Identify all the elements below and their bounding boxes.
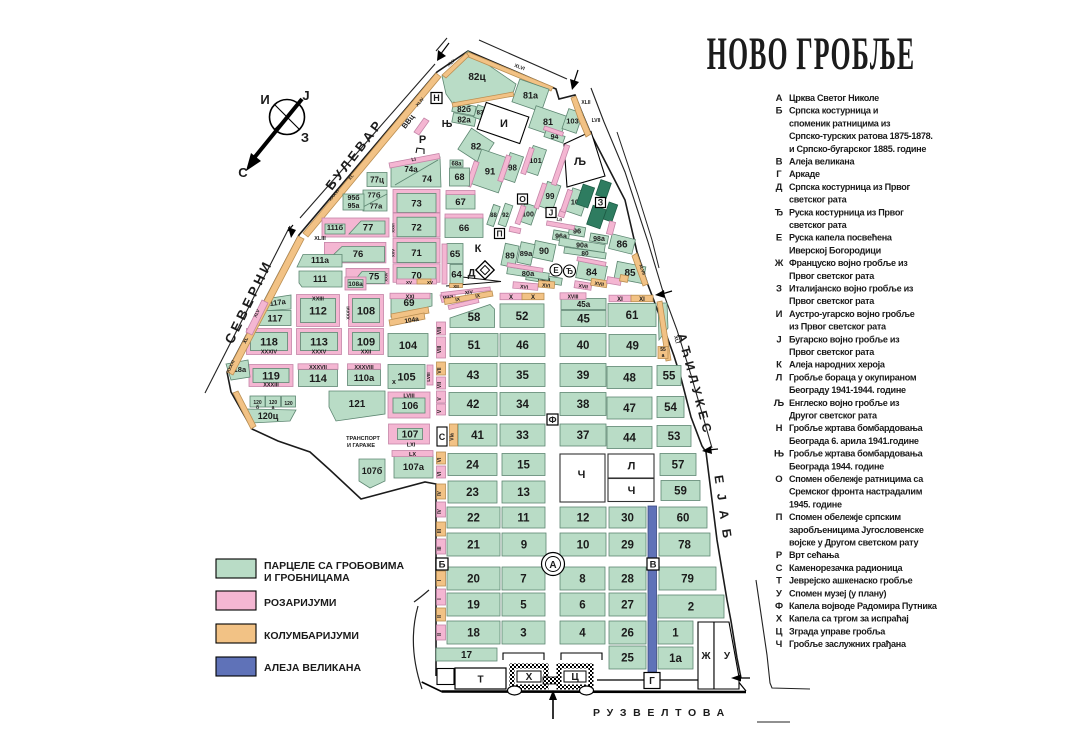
svg-text:39: 39 bbox=[577, 370, 590, 382]
svg-text:И ГАРАЖЕ: И ГАРАЖЕ bbox=[347, 443, 375, 449]
svg-text:С: С bbox=[776, 563, 783, 574]
svg-text:111: 111 bbox=[313, 274, 327, 284]
svg-text:Д: Д bbox=[776, 182, 783, 193]
svg-text:45а: 45а bbox=[577, 300, 591, 309]
svg-text:Л: Л bbox=[776, 372, 783, 383]
svg-text:XXVI: XXVI bbox=[391, 223, 396, 232]
svg-text:VIII: VIII bbox=[437, 345, 443, 353]
svg-text:Ђ: Ђ bbox=[775, 207, 783, 218]
svg-text:заробљеницима Југословенске: заробљеницима Југословенске bbox=[789, 525, 924, 535]
svg-text:LVIII: LVIII bbox=[403, 394, 415, 400]
svg-text:Јеврејско ашкенаско гробље: Јеврејско ашкенаско гробље bbox=[789, 576, 913, 586]
svg-text:XII: XII bbox=[453, 284, 459, 289]
svg-text:77: 77 bbox=[363, 223, 374, 234]
svg-text:LX: LX bbox=[409, 452, 416, 458]
svg-text:Каменорезачка радионица: Каменорезачка радионица bbox=[789, 563, 904, 573]
svg-text:Ђ: Ђ bbox=[566, 267, 573, 276]
svg-text:И: И bbox=[776, 309, 783, 320]
svg-text:57: 57 bbox=[672, 460, 685, 472]
svg-text:Ј: Ј bbox=[549, 208, 554, 218]
svg-text:XXXVII: XXXVII bbox=[309, 365, 327, 371]
svg-text:Ч: Ч bbox=[578, 469, 586, 481]
svg-text:8: 8 bbox=[579, 574, 586, 586]
svg-text:XI: XI bbox=[639, 297, 645, 303]
svg-text:Гробље жртава бомбардовања: Гробље жртава бомбардовања bbox=[789, 423, 924, 433]
svg-text:НОВО ГРОБЉЕ: НОВО ГРОБЉЕ bbox=[707, 28, 915, 80]
svg-text:113: 113 bbox=[310, 337, 328, 349]
svg-text:12: 12 bbox=[577, 513, 590, 525]
svg-text:из Првог светског рата: из Првог светског рата bbox=[789, 322, 887, 332]
svg-text:К: К bbox=[475, 243, 482, 255]
svg-text:25: 25 bbox=[621, 653, 634, 665]
svg-text:Црква Светог Николе: Црква Светог Николе bbox=[789, 93, 879, 103]
svg-text:XVI: XVI bbox=[542, 283, 551, 290]
svg-text:58: 58 bbox=[468, 312, 481, 324]
svg-text:33: 33 bbox=[516, 430, 529, 442]
svg-text:х: х bbox=[392, 379, 396, 386]
svg-text:53: 53 bbox=[668, 431, 681, 443]
svg-text:РУЗВЕЛТОВА: РУЗВЕЛТОВА bbox=[593, 707, 731, 719]
svg-text:АЛЕЈА ВЕЛИКАНА: АЛЕЈА ВЕЛИКАНА bbox=[264, 662, 361, 674]
svg-text:X: X bbox=[531, 295, 535, 301]
svg-text:Београда 6. арила 1941.године: Београда 6. арила 1941.године bbox=[789, 436, 919, 446]
svg-text:Њ: Њ bbox=[442, 119, 453, 130]
svg-text:1: 1 bbox=[672, 628, 679, 640]
svg-text:Руска капела посвећена: Руска капела посвећена bbox=[789, 233, 893, 243]
svg-text:Л: Л bbox=[628, 461, 636, 473]
svg-text:106: 106 bbox=[402, 401, 419, 412]
svg-text:Р: Р bbox=[776, 550, 783, 561]
svg-text:80: 80 bbox=[581, 250, 589, 257]
svg-text:9: 9 bbox=[521, 540, 527, 552]
svg-text:И: И bbox=[260, 92, 269, 107]
svg-text:XXXV: XXXV bbox=[312, 350, 327, 356]
svg-text:XXIII: XXIII bbox=[312, 297, 324, 303]
svg-text:20: 20 bbox=[467, 574, 480, 586]
svg-text:121: 121 bbox=[349, 399, 366, 410]
svg-text:104: 104 bbox=[399, 340, 418, 352]
svg-text:107: 107 bbox=[402, 430, 419, 441]
svg-text:Њ: Њ bbox=[774, 449, 784, 460]
svg-text:60: 60 bbox=[677, 513, 690, 525]
svg-text:Гробље бораца у окупираном: Гробље бораца у окупираном bbox=[789, 372, 917, 382]
svg-text:Бугарско војно гробље из: Бугарско војно гробље из bbox=[789, 334, 900, 344]
svg-text:војске у Другом светском рату: војске у Другом светском рату bbox=[789, 538, 920, 548]
svg-text:30: 30 bbox=[621, 513, 634, 525]
svg-text:29: 29 bbox=[621, 540, 634, 552]
svg-text:Иверској Богородици: Иверској Богородици bbox=[789, 245, 881, 255]
svg-text:Т: Т bbox=[776, 576, 782, 587]
svg-text:99: 99 bbox=[546, 192, 555, 201]
svg-text:81а: 81а bbox=[523, 91, 539, 101]
svg-text:77б: 77б bbox=[368, 191, 381, 200]
svg-text:С: С bbox=[238, 165, 248, 180]
svg-text:светског рата: светског рата bbox=[789, 220, 848, 230]
svg-text:О: О bbox=[519, 194, 526, 204]
svg-text:Ц: Ц bbox=[571, 672, 579, 683]
svg-text:З: З bbox=[598, 198, 604, 208]
svg-text:111б: 111б bbox=[327, 223, 344, 232]
svg-text:Р: Р bbox=[419, 134, 426, 146]
svg-text:Зграда управе гробља: Зграда управе гробља bbox=[789, 626, 886, 636]
svg-text:73: 73 bbox=[411, 199, 422, 210]
svg-text:59: 59 bbox=[674, 486, 687, 498]
svg-text:88: 88 bbox=[490, 213, 497, 219]
svg-text:VII: VII bbox=[437, 367, 443, 374]
svg-text:6: 6 bbox=[579, 600, 585, 612]
svg-text:З: З bbox=[301, 130, 309, 145]
svg-text:4: 4 bbox=[579, 628, 586, 640]
svg-text:Врт сећања: Врт сећања bbox=[789, 550, 840, 560]
svg-text:LVII: LVII bbox=[592, 118, 601, 124]
svg-text:82а: 82а bbox=[457, 115, 471, 124]
svg-text:Капела војводе Радомира Путник: Капела војводе Радомира Путника bbox=[789, 601, 938, 611]
svg-text:Српска костурница и: Српска костурница и bbox=[789, 106, 878, 116]
svg-text:76: 76 bbox=[353, 249, 364, 260]
svg-text:22: 22 bbox=[467, 513, 480, 525]
svg-text:Енглеско војно гробље из: Енглеско војно гробље из bbox=[789, 398, 900, 408]
svg-text:Ж: Ж bbox=[700, 651, 711, 662]
svg-text:2: 2 bbox=[688, 602, 694, 614]
svg-text:ПАРЦЕЛЕ СА ГРОБОВИМА: ПАРЦЕЛЕ СА ГРОБОВИМА bbox=[264, 560, 404, 572]
svg-text:95б: 95б bbox=[347, 194, 360, 202]
svg-text:VI: VI bbox=[437, 471, 443, 476]
svg-text:светског рата: светског рата bbox=[789, 195, 848, 205]
svg-text:Г: Г bbox=[649, 676, 655, 687]
svg-text:34: 34 bbox=[516, 399, 529, 411]
svg-text:120: 120 bbox=[284, 401, 293, 407]
svg-text:VII: VII bbox=[437, 381, 443, 388]
svg-text:Ж: Ж bbox=[774, 258, 784, 269]
svg-text:41: 41 bbox=[471, 430, 484, 442]
svg-text:94: 94 bbox=[551, 134, 559, 141]
svg-text:и Српско-бугарског 1885. годин: и Српско-бугарског 1885. године bbox=[789, 144, 926, 154]
svg-text:37: 37 bbox=[577, 430, 590, 442]
svg-text:Српска костурница из Првог: Српска костурница из Првог bbox=[789, 182, 911, 192]
svg-text:74а: 74а bbox=[404, 165, 418, 174]
svg-text:VI: VI bbox=[437, 457, 443, 462]
svg-text:79: 79 bbox=[681, 574, 694, 586]
svg-text:Спомен обележје српским: Спомен обележје српским bbox=[789, 512, 901, 522]
svg-text:IV: IV bbox=[437, 490, 443, 495]
svg-text:IV: IV bbox=[437, 508, 443, 513]
svg-text:XI: XI bbox=[617, 297, 623, 303]
svg-text:III: III bbox=[437, 546, 443, 551]
svg-text:РОЗАРИЈУМИ: РОЗАРИЈУМИ bbox=[264, 597, 336, 609]
svg-text:XXXVIII: XXXVIII bbox=[354, 365, 374, 371]
svg-text:Љ: Љ bbox=[774, 398, 785, 409]
svg-text:LII: LII bbox=[556, 217, 562, 223]
svg-text:X: X bbox=[509, 295, 513, 301]
svg-text:3: 3 bbox=[520, 628, 526, 640]
svg-text:42: 42 bbox=[467, 399, 480, 411]
svg-text:З: З bbox=[776, 284, 782, 295]
svg-text:26: 26 bbox=[621, 628, 634, 640]
svg-text:66: 66 bbox=[459, 223, 470, 234]
svg-text:84: 84 bbox=[586, 268, 598, 279]
svg-text:61: 61 bbox=[626, 310, 639, 322]
svg-text:XVI: XVI bbox=[520, 284, 529, 291]
svg-text:Другог светског рата: Другог светског рата bbox=[789, 411, 878, 421]
svg-text:XXXIV: XXXIV bbox=[261, 350, 278, 356]
svg-text:55: 55 bbox=[663, 371, 676, 383]
svg-text:89а: 89а bbox=[520, 249, 533, 258]
svg-text:КОЛУМБАРИЈУМИ: КОЛУМБАРИЈУМИ bbox=[264, 630, 359, 642]
svg-text:109: 109 bbox=[357, 337, 375, 349]
svg-text:95а: 95а bbox=[348, 203, 360, 210]
svg-text:51: 51 bbox=[468, 340, 481, 352]
svg-text:114: 114 bbox=[309, 373, 328, 385]
svg-text:5: 5 bbox=[520, 600, 527, 612]
svg-text:VIII: VIII bbox=[437, 326, 443, 334]
svg-text:Д: Д bbox=[468, 268, 476, 280]
svg-text:Руска костурница из Првог: Руска костурница из Првог bbox=[789, 207, 904, 217]
svg-text:Аустро-угарско војно гробље: Аустро-угарско војно гробље bbox=[789, 309, 915, 319]
svg-text:ТРАНСПОРТ: ТРАНСПОРТ bbox=[346, 436, 380, 442]
svg-text:17: 17 bbox=[461, 650, 473, 661]
svg-text:1945. године: 1945. године bbox=[789, 499, 842, 509]
svg-text:LVIII: LVIII bbox=[426, 372, 431, 381]
svg-text:118: 118 bbox=[260, 337, 278, 349]
svg-text:92: 92 bbox=[502, 213, 509, 219]
svg-text:Алеја великана: Алеја великана bbox=[789, 157, 855, 167]
svg-text:Сремског фронта настрадалим: Сремског фронта настрадалим bbox=[789, 487, 923, 497]
svg-text:Спомен музеј (у плану): Спомен музеј (у плану) bbox=[789, 588, 887, 598]
svg-text:У: У bbox=[724, 651, 731, 662]
svg-text:Првог светског рата: Првог светског рата bbox=[789, 347, 875, 357]
svg-text:П: П bbox=[776, 512, 783, 523]
svg-text:Гробље заслужних грађана: Гробље заслужних грађана bbox=[789, 639, 907, 649]
svg-text:120ц: 120ц bbox=[258, 411, 279, 421]
svg-text:Љ: Љ bbox=[574, 156, 586, 168]
svg-text:43: 43 bbox=[467, 370, 480, 382]
svg-text:77а: 77а bbox=[370, 202, 383, 211]
svg-text:28: 28 bbox=[621, 574, 634, 586]
svg-text:52: 52 bbox=[516, 311, 529, 323]
svg-text:108: 108 bbox=[357, 306, 375, 318]
svg-text:Гробље жртава бомбардовања: Гробље жртава бомбардовања bbox=[789, 449, 924, 459]
svg-text:46: 46 bbox=[516, 340, 529, 352]
svg-text:90а: 90а bbox=[576, 243, 588, 250]
svg-text:44: 44 bbox=[623, 433, 636, 445]
svg-text:И ГРОБНИЦАМА: И ГРОБНИЦАМА bbox=[264, 572, 350, 584]
svg-text:112: 112 bbox=[309, 306, 327, 318]
svg-text:а: а bbox=[662, 353, 665, 359]
svg-text:Италијанско војно гробље из: Италијанско војно гробље из bbox=[789, 284, 914, 294]
svg-text:XXII: XXII bbox=[361, 350, 372, 356]
svg-text:Београду 1941-1944. године: Београду 1941-1944. године bbox=[789, 385, 906, 395]
svg-text:23: 23 bbox=[466, 487, 479, 499]
svg-text:54: 54 bbox=[664, 402, 677, 414]
svg-text:49: 49 bbox=[626, 341, 639, 353]
svg-text:78: 78 bbox=[678, 540, 691, 552]
svg-text:Б: Б bbox=[776, 106, 783, 117]
svg-text:98: 98 bbox=[508, 163, 517, 172]
svg-text:107б: 107б bbox=[362, 466, 383, 476]
svg-text:Српско-турских ратова 1875-187: Српско-турских ратова 1875-1878. bbox=[789, 131, 933, 141]
svg-text:18: 18 bbox=[467, 628, 480, 640]
svg-text:98а: 98а bbox=[593, 236, 605, 243]
svg-text:75: 75 bbox=[369, 272, 380, 283]
svg-text:XLIII: XLIII bbox=[314, 236, 326, 242]
svg-text:64: 64 bbox=[451, 269, 462, 280]
svg-text:LXI: LXI bbox=[407, 443, 416, 449]
svg-text:119: 119 bbox=[262, 371, 280, 383]
svg-text:Б: Б bbox=[439, 559, 446, 570]
svg-text:А: А bbox=[776, 93, 783, 104]
svg-text:XXXVI: XXXVI bbox=[346, 306, 351, 319]
svg-text:11: 11 bbox=[517, 513, 530, 525]
svg-text:Спомен обележје ратницима са: Спомен обележје ратницима са bbox=[789, 474, 924, 484]
svg-text:Х: Х bbox=[526, 672, 533, 683]
svg-text:Ф: Ф bbox=[548, 415, 556, 426]
svg-text:72: 72 bbox=[411, 223, 422, 234]
svg-text:91: 91 bbox=[485, 166, 496, 177]
svg-text:71: 71 bbox=[411, 248, 422, 259]
svg-text:47: 47 bbox=[623, 403, 636, 415]
svg-text:89: 89 bbox=[505, 251, 515, 261]
svg-text:Ј: Ј bbox=[776, 334, 781, 345]
svg-text:7: 7 bbox=[520, 574, 526, 586]
svg-text:XLII: XLII bbox=[581, 100, 591, 106]
svg-text:27: 27 bbox=[621, 600, 634, 612]
svg-text:110а: 110а bbox=[354, 373, 375, 384]
svg-text:86: 86 bbox=[616, 240, 628, 251]
svg-text:13: 13 bbox=[517, 487, 530, 499]
svg-text:В: В bbox=[650, 559, 657, 570]
svg-text:Аркаде: Аркаде bbox=[789, 169, 820, 179]
svg-text:Ч: Ч bbox=[776, 639, 783, 650]
svg-text:Г: Г bbox=[776, 169, 782, 180]
svg-text:А: А bbox=[549, 560, 556, 571]
svg-text:107а: 107а bbox=[403, 462, 425, 473]
svg-text:19: 19 bbox=[467, 600, 480, 612]
svg-text:Француско војно гробље из: Француско војно гробље из bbox=[789, 258, 908, 268]
svg-text:35: 35 bbox=[516, 370, 529, 382]
svg-text:90: 90 bbox=[539, 246, 549, 256]
svg-text:24: 24 bbox=[466, 460, 479, 472]
svg-text:Капела са тргом за испраћај: Капела са тргом за испраћај bbox=[789, 614, 909, 624]
svg-text:68а: 68а bbox=[451, 162, 462, 168]
svg-text:68: 68 bbox=[454, 172, 464, 182]
svg-text:С: С bbox=[439, 432, 446, 442]
svg-text:21: 21 bbox=[467, 540, 480, 552]
svg-text:38: 38 bbox=[577, 399, 590, 411]
svg-text:О: О bbox=[775, 474, 782, 485]
svg-text:В: В bbox=[776, 157, 783, 168]
svg-text:Алеја народних хероја: Алеја народних хероја bbox=[789, 360, 886, 370]
svg-text:108а: 108а bbox=[348, 281, 363, 288]
svg-text:15: 15 bbox=[517, 460, 530, 472]
svg-text:П: П bbox=[496, 229, 502, 239]
svg-text:XV: XV bbox=[406, 280, 412, 285]
svg-text:XXXIII: XXXIII bbox=[263, 383, 279, 389]
svg-text:82ц: 82ц bbox=[468, 72, 486, 83]
svg-text:Т: Т bbox=[477, 675, 483, 686]
svg-text:XXV: XXV bbox=[391, 249, 396, 257]
svg-text:XXIV: XXIV bbox=[384, 272, 389, 281]
svg-text:Ј: Ј bbox=[302, 88, 309, 103]
svg-text:117: 117 bbox=[267, 313, 282, 324]
svg-text:XV: XV bbox=[427, 280, 433, 285]
svg-text:Првог светског рата: Првог светског рата bbox=[789, 271, 875, 281]
svg-text:У: У bbox=[776, 588, 782, 599]
svg-text:Првог светског рата: Првог светског рата bbox=[789, 296, 875, 306]
svg-text:Ц: Ц bbox=[776, 626, 783, 637]
svg-text:67: 67 bbox=[455, 197, 466, 208]
svg-text:споменик ратницима из: споменик ратницима из bbox=[789, 118, 891, 128]
svg-text:40: 40 bbox=[577, 340, 590, 352]
svg-text:10: 10 bbox=[577, 540, 590, 552]
svg-text:Београда 1944. године: Београда 1944. године bbox=[789, 461, 884, 471]
svg-text:И: И bbox=[500, 118, 508, 130]
svg-text:Н: Н bbox=[433, 93, 440, 103]
svg-text:XXI: XXI bbox=[406, 295, 415, 301]
svg-text:105: 105 bbox=[397, 372, 415, 384]
svg-text:82: 82 bbox=[471, 141, 482, 152]
svg-text:103: 103 bbox=[566, 117, 579, 126]
svg-text:III: III bbox=[437, 528, 443, 533]
svg-text:Н: Н bbox=[776, 423, 783, 434]
svg-text:77ц: 77ц bbox=[370, 175, 384, 184]
svg-text:К: К bbox=[776, 360, 782, 371]
svg-text:Ч: Ч bbox=[628, 485, 636, 497]
svg-text:74: 74 bbox=[422, 174, 432, 184]
svg-text:111а: 111а bbox=[311, 255, 329, 265]
svg-text:65: 65 bbox=[450, 249, 461, 260]
svg-text:1а: 1а bbox=[669, 653, 682, 665]
svg-text:Ф: Ф bbox=[775, 601, 783, 612]
svg-text:VIа: VIа bbox=[450, 433, 456, 441]
svg-text:Х: Х bbox=[776, 614, 783, 625]
svg-text:48: 48 bbox=[623, 373, 636, 385]
svg-text:45: 45 bbox=[577, 314, 590, 326]
svg-text:Е: Е bbox=[553, 266, 559, 275]
svg-text:XVIII: XVIII bbox=[568, 295, 579, 301]
svg-text:Е: Е bbox=[776, 233, 782, 244]
